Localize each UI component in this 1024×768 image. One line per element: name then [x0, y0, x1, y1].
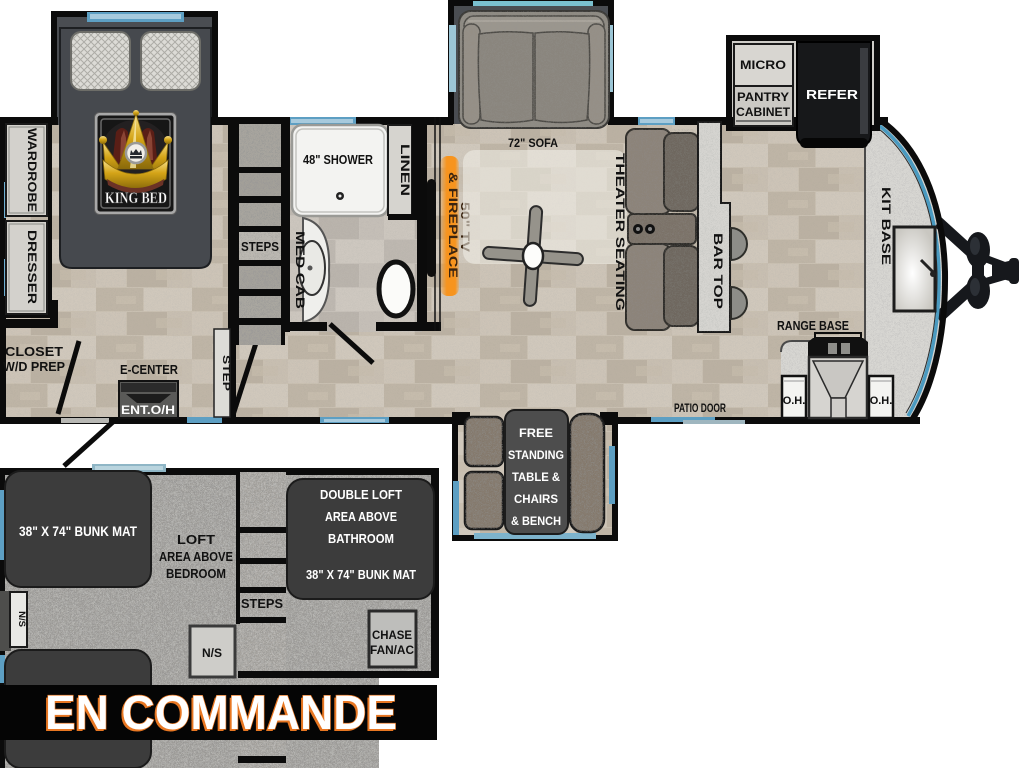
svg-text:AREA ABOVE: AREA ABOVE — [159, 549, 233, 564]
svg-text:FAN/AC: FAN/AC — [370, 643, 414, 657]
svg-text:RANGE BASE: RANGE BASE — [777, 319, 849, 333]
svg-text:CHAIRS: CHAIRS — [514, 494, 558, 506]
svg-text:CABINET: CABINET — [736, 107, 790, 119]
svg-text:& BENCH: & BENCH — [511, 516, 561, 528]
svg-text:STEPS: STEPS — [241, 597, 283, 611]
svg-text:TABLE &: TABLE & — [512, 472, 560, 484]
svg-text:THEATER SEATING: THEATER SEATING — [613, 153, 625, 311]
svg-text:38" X 74" BUNK MAT: 38" X 74" BUNK MAT — [19, 524, 138, 539]
svg-text:MED CAB: MED CAB — [293, 231, 305, 309]
svg-text:WARDROBE: WARDROBE — [25, 128, 37, 212]
svg-text:REFER: REFER — [806, 87, 859, 102]
svg-text:CLOSET: CLOSET — [5, 345, 63, 359]
svg-text:STANDING: STANDING — [508, 450, 564, 462]
svg-text:KIT BASE: KIT BASE — [879, 187, 891, 265]
svg-text:N/S: N/S — [202, 646, 222, 660]
svg-text:STEP: STEP — [220, 355, 232, 391]
svg-text:38" X 74" BUNK MAT: 38" X 74" BUNK MAT — [306, 568, 416, 582]
svg-text:CHASE: CHASE — [372, 628, 412, 642]
svg-text:EN COMMANDE: EN COMMANDE — [45, 687, 397, 740]
svg-text:BATHROOM: BATHROOM — [328, 531, 394, 546]
svg-text:& FIREPLACE: & FIREPLACE — [446, 172, 458, 278]
svg-text:DOUBLE LOFT: DOUBLE LOFT — [320, 487, 402, 502]
svg-text:ENT.O/H: ENT.O/H — [121, 403, 175, 417]
svg-text:BAR TOP: BAR TOP — [711, 233, 723, 309]
svg-text:N/S: N/S — [16, 611, 27, 627]
svg-text:DRESSER: DRESSER — [25, 230, 37, 305]
svg-text:BEDROOM: BEDROOM — [166, 566, 226, 581]
svg-text:PATIO DOOR: PATIO DOOR — [674, 401, 726, 415]
svg-text:LINEN: LINEN — [398, 144, 410, 196]
svg-text:MICRO: MICRO — [740, 60, 786, 72]
svg-text:O.H.: O.H. — [783, 395, 806, 407]
svg-text:E-CENTER: E-CENTER — [120, 363, 178, 377]
svg-text:KING BED: KING BED — [105, 190, 167, 207]
svg-text:STEPS: STEPS — [241, 240, 279, 254]
svg-text:72" SOFA: 72" SOFA — [508, 138, 558, 150]
svg-text:PANTRY: PANTRY — [737, 92, 789, 104]
svg-text:FREE: FREE — [519, 428, 553, 440]
svg-text:W/D PREP: W/D PREP — [3, 360, 65, 374]
svg-text:O.H.: O.H. — [870, 395, 893, 407]
svg-text:48" SHOWER: 48" SHOWER — [303, 153, 373, 167]
svg-text:LOFT: LOFT — [177, 532, 215, 547]
svg-text:AREA ABOVE: AREA ABOVE — [325, 509, 397, 524]
